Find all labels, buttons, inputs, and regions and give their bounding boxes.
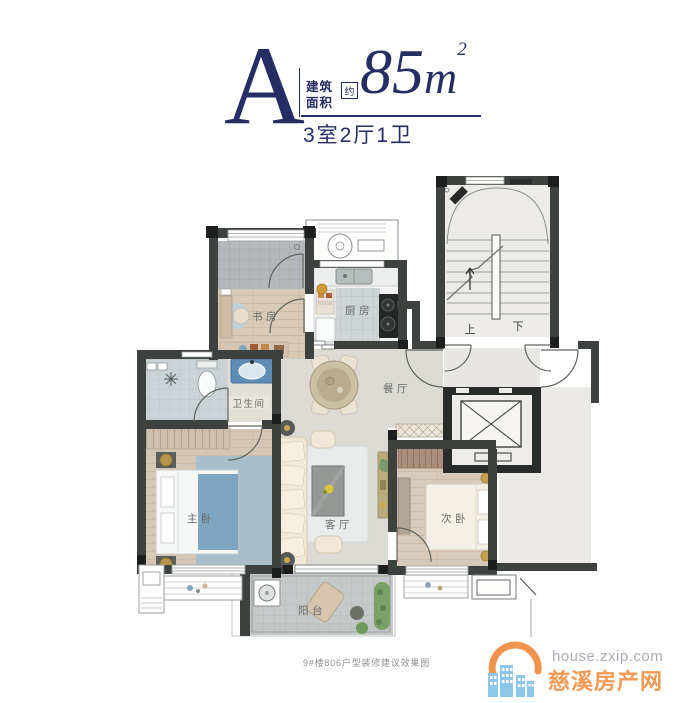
watermark: house.zxip.com 慈溪房产网	[474, 633, 680, 701]
sofa	[277, 437, 307, 571]
ac-grille	[472, 575, 536, 637]
sink-icon	[336, 269, 372, 284]
watermark-site-name: 慈溪房产网	[548, 664, 663, 696]
fridge-icon	[316, 318, 335, 342]
toilet-icon	[197, 361, 217, 397]
side-cabinet	[398, 478, 410, 534]
stool	[311, 431, 335, 448]
label-master-bedroom: 主卧	[187, 512, 215, 525]
floor-plan: 书房 厨房 卫生间 餐厅 主卧 客厅 次卧 阳台 上 下	[0, 0, 680, 703]
label-dining: 餐厅	[383, 382, 411, 395]
kitchen-balcony	[306, 220, 398, 265]
watermark-url: house.zxip.com	[552, 648, 663, 665]
label-bathroom: 卫生间	[232, 398, 265, 410]
dresser	[398, 448, 446, 468]
label-balcony: 阳台	[298, 604, 326, 617]
shower-drain-icon	[164, 372, 178, 386]
coffee-table	[312, 466, 344, 516]
label-study: 书房	[252, 310, 280, 323]
small-table	[350, 606, 364, 620]
stove-icon	[379, 294, 398, 338]
plan-caption: 9#楼806户型装修建议效果图	[303, 656, 430, 669]
dining-furniture	[310, 355, 358, 415]
stool	[315, 536, 342, 553]
wardrobe	[146, 428, 230, 449]
master-bay-window	[164, 576, 242, 600]
dining-table	[310, 361, 358, 409]
master-bed	[156, 470, 238, 554]
second-bay-window	[404, 575, 468, 598]
label-stairs-up: 上	[465, 323, 476, 336]
stair-rail	[492, 235, 500, 319]
left-ac-platform	[139, 565, 164, 613]
vanity-icon	[231, 359, 274, 383]
gold-dish-icon	[317, 284, 327, 294]
label-living-room: 客厅	[325, 518, 353, 531]
label-second-bedroom: 次卧	[441, 512, 469, 525]
label-kitchen: 厨房	[345, 304, 373, 317]
plant-icon	[356, 622, 368, 634]
label-stairs-down: 下	[513, 321, 524, 333]
site-logo-icon	[480, 635, 552, 701]
washing-machine-icon	[254, 580, 280, 606]
